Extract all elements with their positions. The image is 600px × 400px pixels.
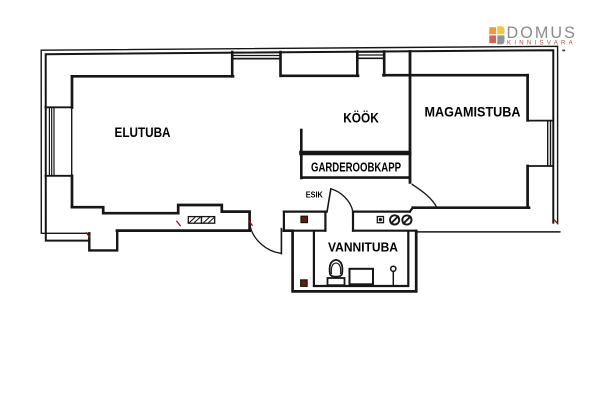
svg-text:VANNITUBA: VANNITUBA bbox=[328, 240, 399, 255]
svg-text:KINNISVARA: KINNISVARA bbox=[507, 41, 576, 47]
svg-text:ELUTUBA: ELUTUBA bbox=[115, 125, 171, 140]
svg-text:DOMUS: DOMUS bbox=[507, 24, 578, 42]
svg-text:ESIK: ESIK bbox=[306, 190, 324, 200]
svg-text:GARDEROOBKAPP: GARDEROOBKAPP bbox=[311, 161, 401, 175]
svg-text:MAGAMISTUBA: MAGAMISTUBA bbox=[425, 104, 521, 120]
svg-text:KÖÖK: KÖÖK bbox=[343, 111, 379, 126]
